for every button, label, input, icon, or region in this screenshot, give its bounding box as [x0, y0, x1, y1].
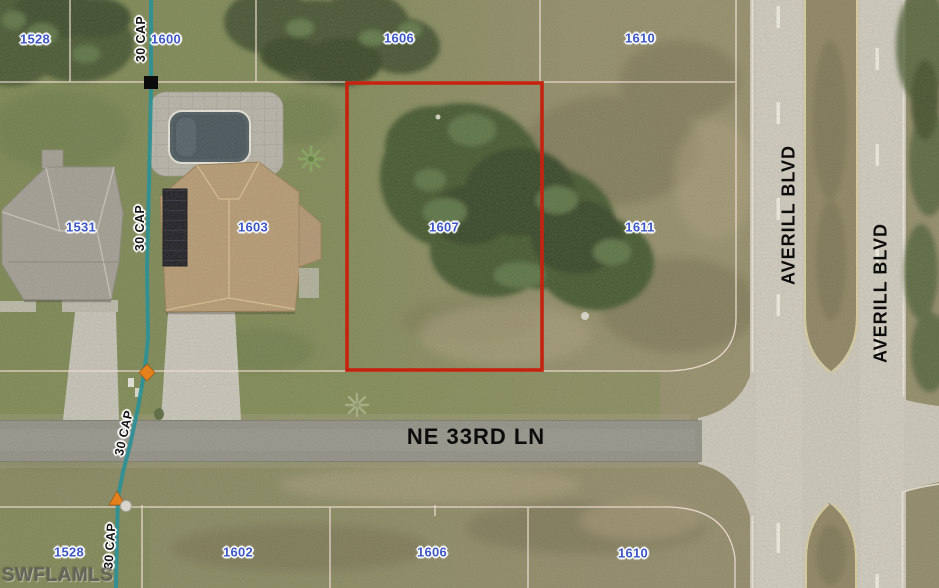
black-square-marker [144, 76, 158, 89]
round-marker [121, 501, 132, 512]
aerial-photo-layer [0, 0, 939, 588]
aerial-parcel-map: 1528 1600 1606 1610 1531 1603 1607 1611 … [0, 0, 939, 588]
photo-grain [0, 0, 939, 588]
